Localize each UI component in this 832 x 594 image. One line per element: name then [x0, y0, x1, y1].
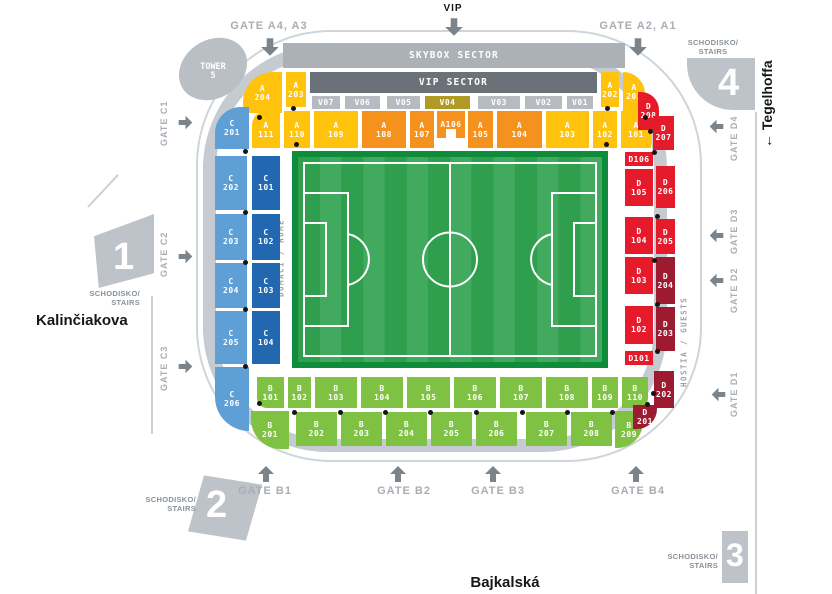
gate-b2-label: GATE B2: [378, 484, 430, 497]
entrance-dot: [294, 142, 299, 147]
section-d207[interactable]: D 207: [653, 116, 674, 150]
section-d203[interactable]: D 203: [656, 307, 675, 351]
gate-b1-label: GATE B1: [239, 484, 291, 497]
section-b206[interactable]: B 206: [476, 412, 517, 446]
section-b205[interactable]: B 205: [431, 412, 472, 446]
entrance-dot: [604, 142, 609, 147]
gate-d3-label: GATE D3: [727, 207, 741, 255]
entrance-dot: [338, 410, 343, 415]
entrance-dot: [655, 214, 660, 219]
section-b109[interactable]: B 109: [592, 377, 618, 408]
gate-c3-arrow-icon: [176, 358, 195, 375]
players-tunnel-notch: [446, 129, 456, 148]
section-v04[interactable]: V04: [425, 96, 470, 109]
gate-b3-arrow-icon: [483, 464, 503, 484]
stairs-4-label: SCHODISKO/ STAIRS: [668, 39, 758, 56]
section-b201[interactable]: B 201: [251, 411, 289, 449]
football-pitch: [292, 151, 608, 368]
section-c203[interactable]: C 203: [215, 214, 247, 260]
section-a109[interactable]: A 109: [314, 111, 358, 148]
entrance-dot: [648, 129, 653, 134]
section-b106[interactable]: B 106: [454, 377, 496, 408]
section-c104[interactable]: C 104: [252, 311, 280, 364]
section-c202[interactable]: C 202: [215, 156, 247, 210]
entrance-dot: [291, 106, 296, 111]
section-d106[interactable]: D106: [625, 152, 653, 166]
street-tegelhoffa: ← Tegelhoffa: [756, 54, 778, 154]
section-a105[interactable]: A 105: [468, 111, 493, 148]
vip-sector-label: VIP SECTOR: [419, 77, 488, 88]
section-a108[interactable]: A 108: [362, 111, 406, 148]
entrance-dot: [652, 258, 657, 263]
gate-d4-arrow-icon: [707, 118, 726, 135]
skybox-sector-label: SKYBOX SECTOR: [409, 50, 499, 61]
section-d104[interactable]: D 104: [625, 217, 653, 254]
vip-entrance-arrow-icon: [443, 16, 465, 38]
section-v06[interactable]: V06: [345, 96, 380, 109]
stairs-2-label: SCHODISKO/ STAIRS: [140, 496, 196, 513]
section-b108[interactable]: B 108: [546, 377, 588, 408]
section-a202[interactable]: A 202: [601, 72, 619, 107]
section-b105[interactable]: B 105: [407, 377, 450, 408]
entrance-dot: [652, 150, 657, 155]
street-line-tegelhoffa: [755, 112, 757, 594]
gate-a2-a1-arrow-icon: [627, 36, 649, 58]
gate-b1-arrow-icon: [256, 464, 276, 484]
gate-d2-arrow-icon: [707, 272, 726, 289]
section-c205[interactable]: C 205: [215, 311, 247, 364]
entrance-dot: [383, 410, 388, 415]
entrance-dot: [292, 410, 297, 415]
stairs-4-number: 4: [718, 62, 739, 105]
entrance-dot: [651, 391, 656, 396]
section-a203[interactable]: A 203: [286, 72, 306, 107]
section-c204[interactable]: C 204: [215, 263, 247, 308]
gate-b4-label: GATE B4: [612, 484, 664, 497]
section-b103[interactable]: B 103: [315, 377, 357, 408]
entrance-dot: [243, 210, 248, 215]
section-b203[interactable]: B 203: [341, 412, 382, 446]
section-d205[interactable]: D 205: [656, 219, 675, 254]
entrance-dot: [643, 115, 648, 120]
section-d206[interactable]: D 206: [656, 166, 675, 208]
guests-side-label: HOSTIA / GUESTS: [677, 285, 691, 399]
gate-a2-a1-label: GATE A2, A1: [592, 20, 684, 32]
section-d204[interactable]: D 204: [656, 257, 675, 304]
section-v03[interactable]: V03: [478, 96, 520, 109]
section-b202[interactable]: B 202: [296, 412, 337, 446]
stairs-1-number: 1: [113, 236, 134, 279]
section-c101[interactable]: C 101: [252, 156, 280, 210]
entrance-dot: [243, 364, 248, 369]
gate-d3-arrow-icon: [707, 227, 726, 244]
entrance-dot: [645, 402, 650, 407]
gate-d2-label: GATE D2: [727, 266, 741, 314]
entrance-dot: [655, 302, 660, 307]
section-d101[interactable]: D101: [625, 351, 653, 365]
section-d202[interactable]: D 202: [654, 371, 674, 408]
entrance-dot: [655, 349, 660, 354]
street-kalinciakova: Kalinčiakova: [36, 312, 128, 329]
gate-a4-a3-label: GATE A4, A3: [223, 20, 315, 32]
section-b208[interactable]: B 208: [571, 412, 612, 446]
section-v07[interactable]: V07: [312, 96, 340, 109]
section-d103[interactable]: D 103: [625, 257, 653, 294]
section-d105[interactable]: D 105: [625, 169, 653, 206]
gate-d4-label: GATE D4: [727, 112, 741, 164]
section-c102[interactable]: C 102: [252, 214, 280, 260]
vip-entrance-label: VIP: [437, 2, 469, 14]
gate-d1-label: GATE D1: [727, 369, 741, 419]
entrance-dot: [428, 410, 433, 415]
section-d102[interactable]: D 102: [625, 306, 653, 344]
stairs-2-number: 2: [206, 484, 227, 527]
section-c206[interactable]: C 206: [215, 367, 249, 431]
entrance-dot: [520, 410, 525, 415]
entrance-dot: [257, 115, 262, 120]
entrance-dot: [243, 260, 248, 265]
gate-c2-arrow-icon: [176, 248, 195, 265]
section-c103[interactable]: C 103: [252, 263, 280, 308]
section-b204[interactable]: B 204: [386, 412, 427, 446]
vip-sector[interactable]: VIP SECTOR: [310, 72, 597, 93]
entrance-dot: [243, 149, 248, 154]
street-bajkalska: Bajkalská: [430, 574, 580, 591]
tower-label: TOWER5: [186, 62, 240, 82]
section-b107[interactable]: B 107: [500, 377, 542, 408]
gate-c1-arrow-icon: [176, 114, 195, 131]
gate-a4-a3-arrow-icon: [259, 36, 281, 58]
section-a103[interactable]: A 103: [546, 111, 589, 148]
entrance-dot: [605, 106, 610, 111]
section-b102[interactable]: B 102: [288, 377, 311, 408]
section-a107[interactable]: A 107: [410, 111, 434, 148]
gate-d1-arrow-icon: [709, 386, 728, 403]
entrance-dot: [610, 410, 615, 415]
section-v01[interactable]: V01: [567, 96, 593, 109]
gate-c2-label: GATE C2: [157, 229, 171, 279]
stairs-3-label: SCHODISKO/ STAIRS: [640, 553, 718, 570]
stairs-1-label: SCHODISKO/ STAIRS: [78, 290, 140, 307]
section-b207[interactable]: B 207: [526, 412, 567, 446]
entrance-dot: [474, 410, 479, 415]
gate-b3-label: GATE B3: [472, 484, 524, 497]
section-b104[interactable]: B 104: [361, 377, 403, 408]
entrance-dot: [243, 307, 248, 312]
gate-c3-label: GATE C3: [157, 343, 171, 393]
street-line-kalinciakova: [151, 296, 153, 434]
stadium-seating-map: TOWER5 1 SCHODISKO/ STAIRS 2 SCHODISKO/ …: [0, 0, 832, 594]
stairs-3-number: 3: [726, 537, 744, 574]
entrance-dot: [257, 401, 262, 406]
entrance-dot: [565, 410, 570, 415]
skybox-sector[interactable]: SKYBOX SECTOR: [283, 43, 625, 68]
gate-b4-arrow-icon: [626, 464, 646, 484]
gate-b2-arrow-icon: [388, 464, 408, 484]
gate-c1-label: GATE C1: [157, 100, 171, 146]
street-line-kalinciakova-diagonal: [87, 174, 118, 208]
section-a104[interactable]: A 104: [497, 111, 542, 148]
section-v02[interactable]: V02: [525, 96, 562, 109]
section-v05[interactable]: V05: [387, 96, 420, 109]
